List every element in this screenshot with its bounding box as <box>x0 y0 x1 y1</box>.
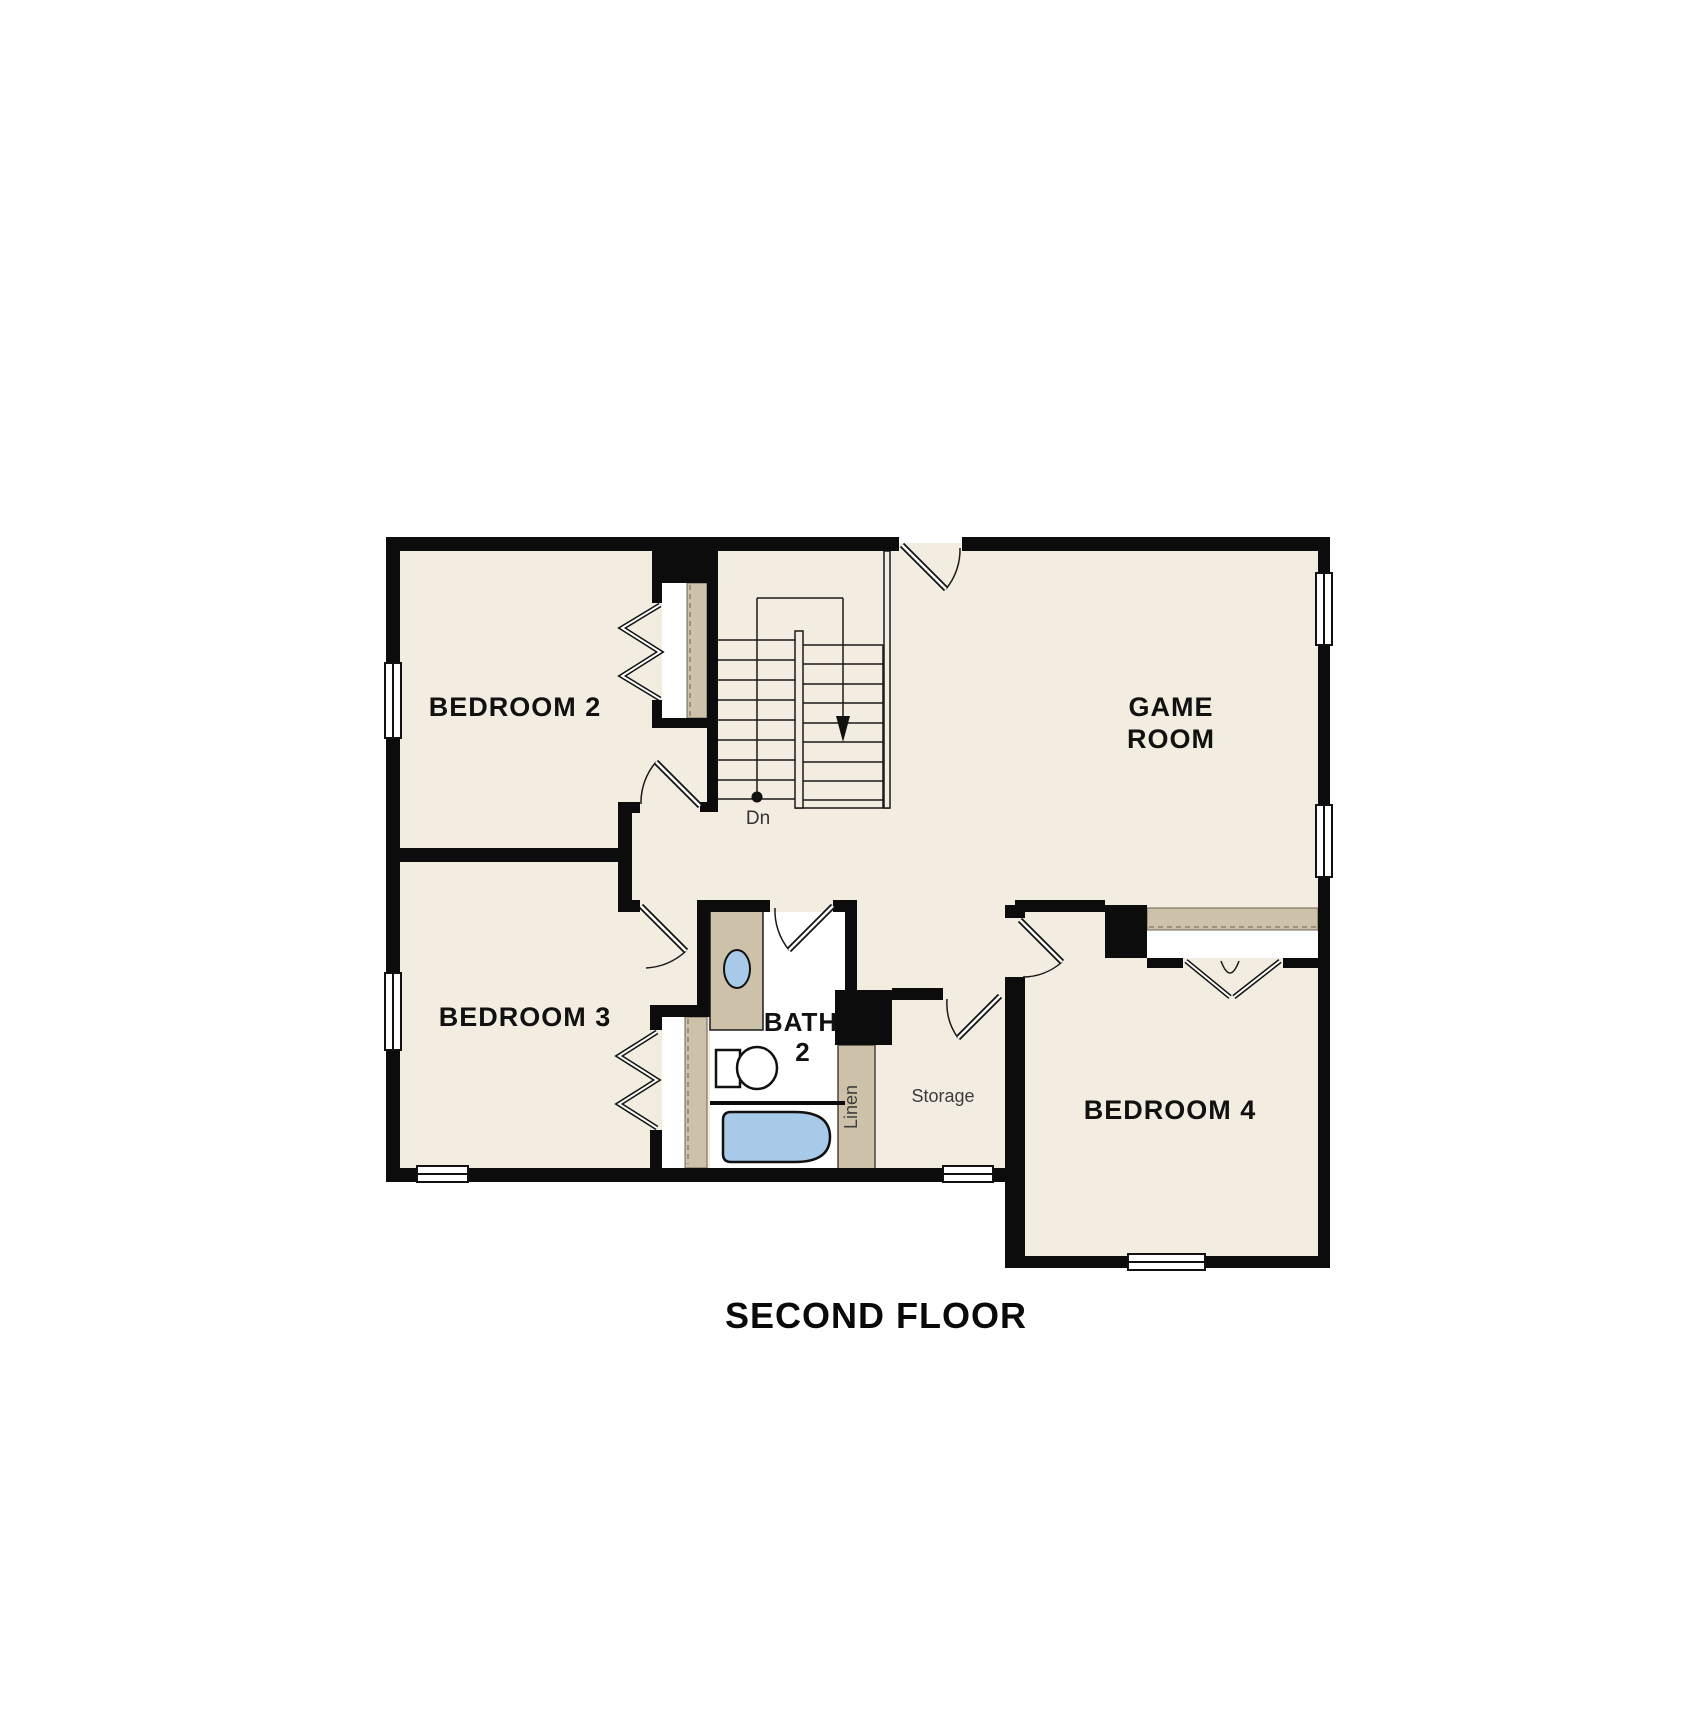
bath2-label-line2: 2 <box>795 1037 810 1067</box>
wall-segment <box>623 900 640 912</box>
wall-segment <box>652 718 718 728</box>
wall-segment <box>1318 537 1330 573</box>
wall-segment <box>650 1005 710 1017</box>
wall-segment <box>386 1168 417 1182</box>
storage-label: Storage <box>911 1086 974 1106</box>
bedroom4-closet-floor <box>1147 930 1318 958</box>
bedroom3-bottom-window-icon <box>417 1166 468 1182</box>
wall-segment <box>386 1050 400 1182</box>
wall-segment <box>1005 977 1025 1268</box>
wall-segment <box>962 537 1330 551</box>
wall-segment <box>650 1130 662 1168</box>
wall-segment <box>386 848 618 862</box>
wall-segment <box>1318 645 1330 805</box>
wall-segment <box>1015 900 1105 912</box>
wall-segment <box>835 990 892 1045</box>
sink-icon <box>724 950 750 988</box>
floor-plan-drawing: BEDROOM 2 BEDROOM 3 BEDROOM 4 GAME ROOM … <box>0 0 1699 1718</box>
storage-window-icon <box>943 1166 993 1182</box>
wall-segment <box>1318 877 1330 1268</box>
wall-segment <box>707 583 718 802</box>
stair-railing <box>884 551 890 808</box>
bedroom2-label: BEDROOM 2 <box>429 692 602 722</box>
wall-segment <box>468 1168 943 1182</box>
wall-segment <box>386 537 899 551</box>
tub-alcove-wall <box>710 1101 845 1105</box>
bedroom4-window-icon <box>1128 1254 1205 1270</box>
wall-segment <box>1283 958 1318 968</box>
wall-segment <box>652 547 718 583</box>
floor-plan-page: BEDROOM 2 BEDROOM 3 BEDROOM 4 GAME ROOM … <box>0 0 1699 1718</box>
bedroom3-closet-floor <box>662 1017 685 1168</box>
game-room-label-line1: GAME <box>1129 692 1214 722</box>
stair-center-stringer <box>795 631 803 808</box>
bedroom2-closet-floor <box>662 583 687 718</box>
wall-segment <box>650 1017 662 1030</box>
bathtub-icon <box>723 1112 830 1162</box>
game-room-label-line2: ROOM <box>1127 724 1215 754</box>
wall-segment <box>892 988 943 1000</box>
page-title: SECOND FLOOR <box>725 1295 1027 1336</box>
bath2-label-line1: BATH <box>764 1007 838 1037</box>
bedroom3-left-window-icon <box>385 973 401 1050</box>
game-room-upper-window-icon <box>1316 573 1332 645</box>
bedroom2-window-icon <box>385 663 401 738</box>
game-room-lower-window-icon <box>1316 805 1332 877</box>
toilet-icon <box>716 1047 777 1089</box>
wall-segment <box>386 537 400 663</box>
wall-segment <box>1205 1256 1330 1268</box>
wall-segment <box>618 802 632 912</box>
wall-segment <box>700 802 718 812</box>
stairs-dn-label: Dn <box>746 808 770 829</box>
bedroom3-label: BEDROOM 3 <box>439 1002 612 1032</box>
wall-segment <box>1147 958 1183 968</box>
wall-segment <box>697 902 710 1009</box>
linen-label: Linen <box>841 1085 861 1129</box>
stair-start-dot <box>752 792 763 803</box>
bedroom4-label: BEDROOM 4 <box>1084 1095 1257 1125</box>
wall-segment <box>845 902 857 994</box>
wall-segment <box>652 583 662 603</box>
wall-segment <box>652 700 662 718</box>
wall-segment <box>1105 905 1147 958</box>
